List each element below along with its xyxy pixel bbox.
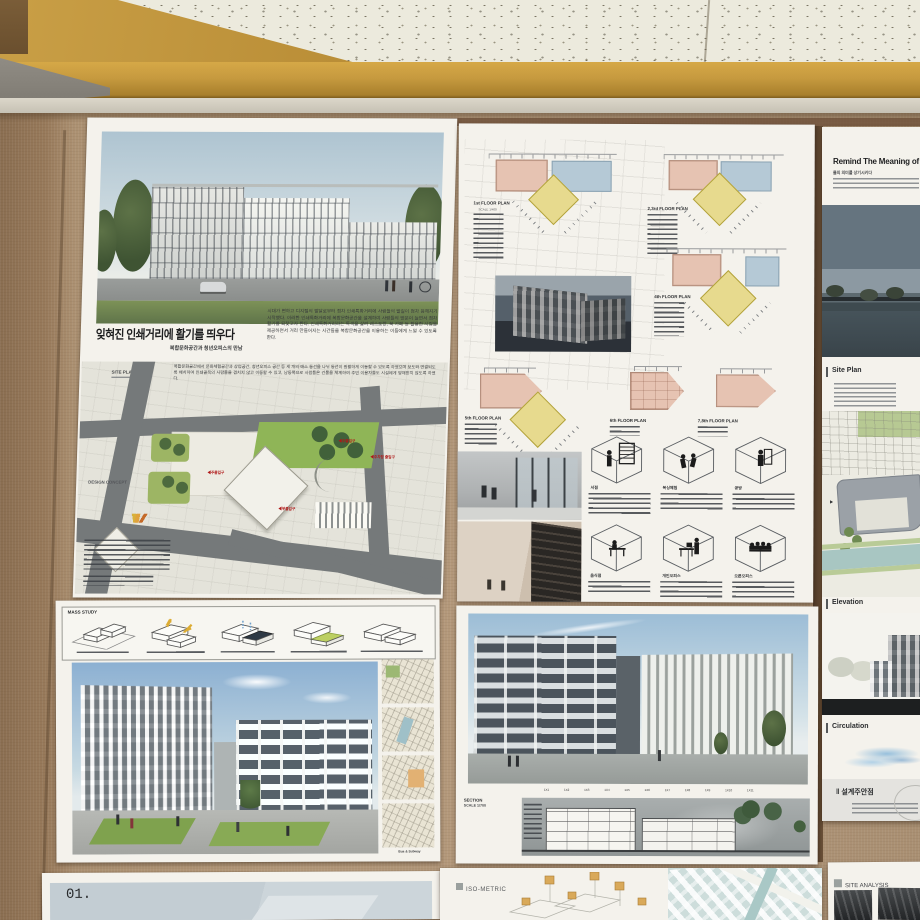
glass-building-columns: [474, 636, 616, 758]
wood-corner-block: [0, 0, 28, 54]
remind-elevation-label: Elevation: [832, 599, 863, 606]
mass-caption-2: [147, 651, 205, 655]
plaza-ground: [468, 754, 808, 785]
section-label: SECTION: [464, 798, 483, 803]
map-tile-3: [382, 755, 434, 799]
cube-bookstore: 서점: [588, 436, 658, 518]
cube-label: 오픈오피스: [734, 573, 802, 579]
poster-title: 잊혀진 인쇄거리에 활기를 띄우다: [95, 324, 249, 343]
plan4-pink-wing: [672, 254, 721, 286]
cube-caption-lines: [588, 493, 650, 517]
plaza-rendering: [468, 614, 808, 785]
map-highlight: [408, 769, 424, 787]
city-blocks: [822, 411, 920, 475]
floor: [457, 507, 581, 519]
section-trees: [742, 800, 760, 818]
poster01-number: 01.: [66, 887, 91, 903]
site-trees: [844, 527, 854, 537]
grid-label: 1X11: [747, 788, 754, 792]
remind-subtitle: 물의 의미를 상기시키다: [833, 170, 872, 176]
plan1-title: 1st FLOOR PLAN: [474, 200, 510, 205]
elevation-drawing: [822, 613, 920, 699]
concept-notes-lines-2: [83, 576, 153, 586]
transit-map-column: Bus & Subway: [382, 659, 435, 855]
iso-siteplan-teal: [668, 868, 822, 920]
mass-diagram-3: [215, 617, 281, 649]
mass-study-label: MASS STUDY: [68, 610, 98, 615]
section-ground-line: [522, 850, 810, 853]
grid-label: 1X5: [624, 788, 629, 792]
siteplan-notes: [834, 383, 896, 407]
mass-caption-1: [77, 651, 129, 655]
analysis-photo-2: [878, 888, 920, 920]
cube-caption-lines: [588, 581, 650, 593]
elevation-buildings-2: [870, 661, 892, 697]
remind-intro-lines: [833, 178, 919, 191]
remind-siteplan-drawing: ▶: [822, 411, 920, 597]
grid-label: 1X3: [584, 788, 589, 792]
cube-label: 개인오피스: [662, 573, 730, 579]
plan4-blue-wing: [745, 256, 779, 286]
map-tile-4: [382, 803, 434, 847]
interior-render-1: [457, 451, 581, 519]
poster-section: 1X1 1X2 1X3 1X4 1X5 1X6 1X7 1X8 1X9 1X10…: [456, 606, 819, 865]
marker-parking-entrance: ◀주차장 출입구: [370, 454, 395, 460]
cube-label: 복싱체험: [663, 485, 731, 491]
concept-notes-lines: [84, 540, 171, 570]
marker-main-entrance-2: ◀주출입구: [338, 438, 355, 444]
plan78-shape: [716, 374, 776, 407]
water: [822, 311, 920, 357]
grid-label: 1X7: [665, 788, 670, 792]
map-tile-2: [382, 707, 434, 751]
mass-caption-4: [291, 651, 347, 655]
poster01-image: 01.: [50, 881, 432, 920]
grid-label-row: 1X1 1X2 1X3 1X4 1X5 1X6 1X7 1X8 1X9 1X10…: [544, 788, 754, 793]
iso-label-row: ISO-METRIC: [456, 878, 506, 896]
plaza-people: [508, 756, 511, 767]
dim-ticks-5: [484, 367, 536, 372]
map-caption: Bus & Subway: [398, 849, 420, 853]
picture-rail: [0, 98, 920, 113]
roof-highlight: [252, 895, 379, 920]
interior-figures: [482, 485, 487, 497]
remind-circulation-label: Circulation: [832, 723, 869, 730]
left-building: [81, 685, 213, 814]
pedestrians: [385, 280, 388, 291]
map-tile-1: [382, 659, 434, 703]
floor-level-labels: [524, 804, 542, 842]
dim-ticks-3: [666, 248, 786, 253]
iso-square-icon: [456, 883, 463, 890]
cube-boxing: 복싱체험: [660, 436, 730, 518]
thumb-building-2: [581, 298, 625, 341]
lawn-2: [209, 822, 331, 846]
plaza-tree-right: [762, 710, 786, 746]
window-mullions: [515, 458, 577, 510]
marker-main-entrance: ◀주출입구: [207, 470, 224, 476]
plan5-title: 5th FLOOR PLAN: [465, 415, 501, 420]
elevation-accent-bar: [826, 599, 828, 609]
intro-paragraph: 시대가 변하고 디지털의 발달로부터 점차 인쇄특화거리에 사람들의 발길이 점…: [266, 308, 437, 352]
cube-label: 음식점: [590, 573, 658, 579]
exhibition-wall-photo: 잊혀진 인쇄거리에 활기를 띄우다 복합문화공간과 청년오피스의 만남 시대가 …: [0, 0, 920, 920]
cube-label: 서점: [591, 485, 659, 491]
poster-site-analysis: SITE ANALYSIS: [828, 862, 920, 920]
map-green: [386, 665, 400, 677]
courtyard-tree: [240, 780, 260, 814]
dim-ticks-1: [489, 153, 617, 158]
poster-mass-study: MASS STUDY: [56, 599, 441, 862]
circulation-accent-bar: [826, 723, 828, 733]
analysis-square-icon: [834, 879, 842, 887]
plan6-title: 6th FLOOR PLAN: [610, 418, 646, 423]
section-drawing: [522, 798, 810, 857]
grid-label: 1X1: [544, 788, 549, 792]
cloud: [222, 674, 292, 690]
green-patch-1: [151, 434, 190, 462]
building-right-block: [347, 222, 437, 279]
poster-remind: Remind The Meaning of 물의 의미를 상기시키다 Site …: [822, 127, 920, 821]
grid-label: 1X4: [604, 788, 609, 792]
parking-hatch: [315, 502, 372, 528]
canal-rendering: [822, 205, 920, 357]
site-yard: [855, 497, 909, 531]
grid-label: 1X2: [564, 788, 569, 792]
grid-label: 1X10: [725, 788, 732, 792]
axonometric-diagram: [500, 872, 660, 920]
cube-label: 공방: [735, 485, 803, 491]
site-plan-drawing: 복합문화공간에서 문화체험공간과 상업공간, 청년오피스 공간 등 세 개의 매…: [75, 362, 448, 595]
cube-restaurant: 음식점: [588, 524, 658, 600]
dark-rendering-thumb: [495, 276, 631, 352]
interior2-figures: [487, 579, 491, 589]
program-cube-grid: 서점 복싱체험 공방 음식점 개인오피스: [587, 434, 806, 601]
plan1-legend: [473, 213, 503, 261]
plan4-legend: [654, 302, 684, 336]
courtyard-rendering: [72, 662, 379, 855]
thumb-building: [513, 286, 587, 344]
site-text: 복합문화공간에서 문화체험공간과 상업공간, 청년오피스 공간 등 세 개의 매…: [173, 364, 436, 383]
poster-01: 01.: [42, 871, 440, 920]
bridge-deck: [822, 297, 920, 301]
plan6-shape: [630, 372, 684, 410]
mass-diagram-4: [287, 617, 353, 649]
mass-caption-5: [361, 650, 423, 654]
siteplan-accent-bar: [826, 367, 828, 377]
section-box-left: [546, 808, 636, 852]
design-concept-label: DESIGN CONCEPT: [88, 480, 127, 485]
cube-caption-lines: [732, 581, 794, 599]
plan78-title: 7,8th FLOOR PLAN: [698, 418, 738, 423]
lawn-1: [89, 818, 196, 844]
green-patch-2: [148, 472, 191, 504]
elevation-dark-band: [822, 699, 920, 715]
plan4-title: 4th FLOOR PLAN: [654, 294, 690, 299]
mass-diagram-5: [359, 616, 425, 648]
interior-render-2: [457, 521, 581, 601]
elevation-buildings: [888, 635, 920, 697]
analysis-photo-1: [834, 890, 872, 920]
dark-bookwall: [531, 522, 581, 602]
grid-label: 1X9: [705, 788, 710, 792]
mass-caption-3: [221, 651, 275, 655]
section-scale: SCALE 1/700: [464, 804, 486, 808]
remind-siteplan-label: Site Plan: [832, 367, 862, 374]
dim-ticks-6: [634, 366, 682, 371]
poster-floor-plans: 1st FLOOR PLAN SCALE 1/400 2,3rd FLOOR P…: [457, 123, 815, 602]
dim-ticks-2: [664, 154, 784, 159]
back-building: [214, 742, 236, 812]
section-tree-small: [794, 820, 806, 832]
remind-title: Remind The Meaning of: [833, 157, 919, 166]
marker-sub-entrance: ◀부출입구: [278, 506, 295, 512]
mass-diagram-2: [143, 617, 209, 649]
cube-open-office: 오픈오피스: [732, 524, 802, 600]
poster-isometric: ISO-METRIC: [440, 868, 822, 920]
poster-subtitle: 복합문화공간과 청년오피스의 만남: [95, 344, 242, 352]
terrace-steps: [314, 458, 350, 492]
cube-workshop: 공방: [732, 436, 802, 518]
circulation-sketch: [828, 737, 920, 779]
building-left-block: [149, 187, 244, 279]
grid-label: 1X8: [685, 788, 690, 792]
section-box-right: [642, 818, 736, 852]
building-center-block: [241, 198, 349, 279]
cube-private-office: 개인오피스: [660, 524, 730, 600]
concept-scribble: [125, 514, 151, 523]
grid-label: 1X6: [645, 788, 650, 792]
mass-study-box: MASS STUDY: [62, 605, 436, 660]
mass-diagram-1: [71, 617, 137, 649]
dim-ticks-78: [720, 368, 772, 373]
people: [116, 814, 119, 824]
plaza-tree-mid: [714, 732, 728, 754]
cloud-2: [302, 692, 352, 704]
wood-trim-horizontal: [0, 62, 920, 98]
site-entry-arrow: ▶: [830, 499, 833, 504]
plan1-scale: SCALE 1/400: [479, 207, 497, 211]
link-block: [616, 656, 640, 758]
hero-rendering: [96, 132, 444, 325]
keypoints-band: ‖ 설계주안점: [822, 779, 920, 821]
bank-trees: [826, 285, 844, 297]
cube-caption-lines: [660, 493, 722, 511]
cube-caption-lines: [732, 493, 794, 511]
plan23-title: 2,3rd FLOOR PLAN: [648, 206, 688, 211]
plan5-legend: [465, 423, 497, 445]
elevation-faint-trees: [828, 657, 854, 677]
keypoints-label: ‖ 설계주안점: [836, 787, 874, 797]
map-water: [396, 717, 413, 745]
poster-printing-street: 잊혀진 인쇄거리에 활기를 띄우다 복합문화공간과 청년오피스의 만남 시대가 …: [73, 118, 458, 599]
car: [200, 282, 226, 292]
cube-caption-lines: [660, 581, 722, 599]
